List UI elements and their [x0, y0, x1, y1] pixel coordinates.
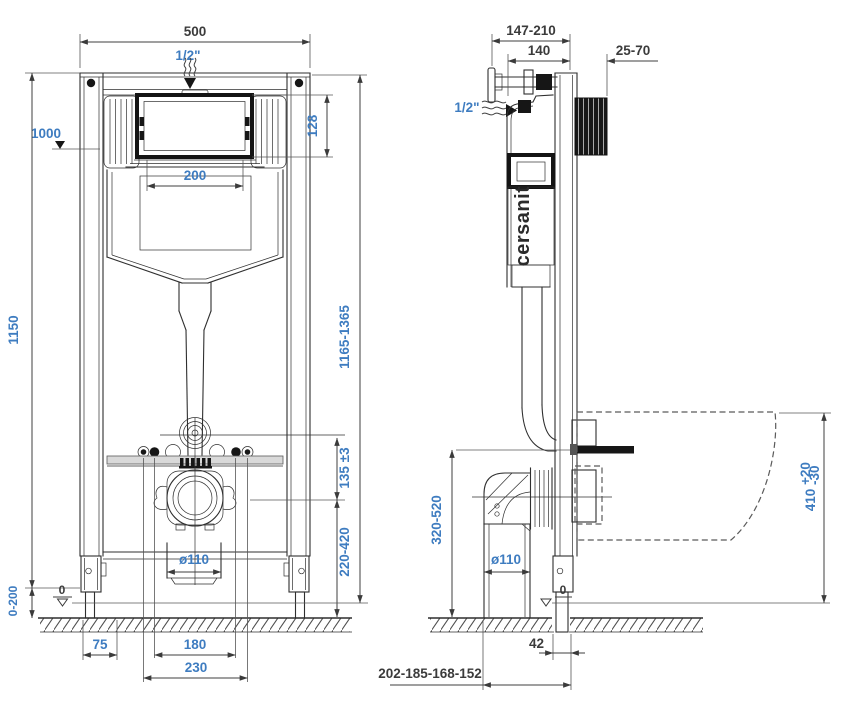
brand-logo: cersanit — [512, 186, 534, 267]
dim-outer-fixing-spacing: 230 — [185, 660, 208, 675]
dim-front-total-width: 500 — [184, 24, 207, 39]
side-floor-zero-label: 0 — [560, 583, 567, 597]
dim-frame-depth: 140 — [528, 43, 551, 58]
dim-bowl-height-tol-lower: -30 — [807, 465, 822, 485]
dim-plate-opening-height: 128 — [305, 114, 320, 137]
flow-arrow-icon — [184, 78, 196, 89]
technical-drawing: ø110 1/2" 10 — [0, 0, 850, 715]
drain-sleeve-front: ø110 — [167, 543, 221, 584]
dim-frame-height: 1150 — [6, 315, 21, 344]
dim-install-height-range: 1165-1365 — [337, 305, 352, 369]
dim-bowl-height-value: 410 — [803, 489, 818, 512]
front-floor-zero-label: 0 — [59, 583, 66, 597]
zero-datum-front: 0 — [53, 583, 368, 606]
front-height-marker: 1000 — [31, 126, 61, 141]
drain-elbow: ø110 — [484, 468, 552, 617]
water-inlet-front: 1/2" — [175, 48, 200, 89]
dim-foot-width: 75 — [92, 637, 108, 652]
bowl-fixings — [472, 420, 634, 522]
dim-side-drain-diameter: ø110 — [491, 552, 521, 567]
dim-flush-outlet-height: 220-420 — [337, 527, 352, 577]
fixing-bolt-icon — [295, 79, 303, 87]
dim-wall-offset-range: 25-70 — [616, 43, 651, 58]
front-view: ø110 1/2" 10 — [6, 24, 368, 682]
dim-leg-adjust-range: 0-200 — [6, 585, 20, 616]
side-view: 1/2" cersanit — [378, 23, 831, 690]
floor-front — [38, 618, 352, 632]
wall-section — [575, 98, 607, 155]
dim-bowl-height: 410 +20 -30 — [798, 462, 822, 511]
dim-depth-range: 147-210 — [506, 23, 556, 38]
flush-plate-opening — [126, 90, 264, 167]
installation-drawing-page: ø110 1/2" 10 — [0, 0, 850, 715]
height-marker-1000: 1000 — [31, 126, 100, 149]
dim-fixing-spacing: 180 — [184, 637, 207, 652]
frame-crossrail — [107, 418, 345, 469]
zero-datum-side: 0 — [541, 583, 830, 606]
frame-rail-side — [555, 73, 577, 556]
dim-outlet-distance-range: 202-185-168-152 — [378, 666, 482, 681]
side-inlet-label: 1/2" — [454, 100, 479, 115]
fixing-bolt-icon — [87, 79, 95, 87]
dim-foot-depth: 42 — [529, 636, 544, 651]
toilet-bowl-outline — [575, 412, 776, 540]
wall-bracket — [488, 68, 557, 102]
front-inlet-label: 1/2" — [175, 48, 200, 63]
dim-outlet-height-range: 320-520 — [429, 495, 444, 545]
cistern-body — [107, 170, 283, 455]
dim-flush-offset: 135 ±3 — [337, 447, 352, 489]
dim-front-drain-diameter: ø110 — [179, 552, 209, 567]
floor-side — [428, 618, 703, 632]
dim-plate-opening-width: 200 — [184, 168, 207, 183]
cistern-side: cersanit — [507, 95, 556, 451]
